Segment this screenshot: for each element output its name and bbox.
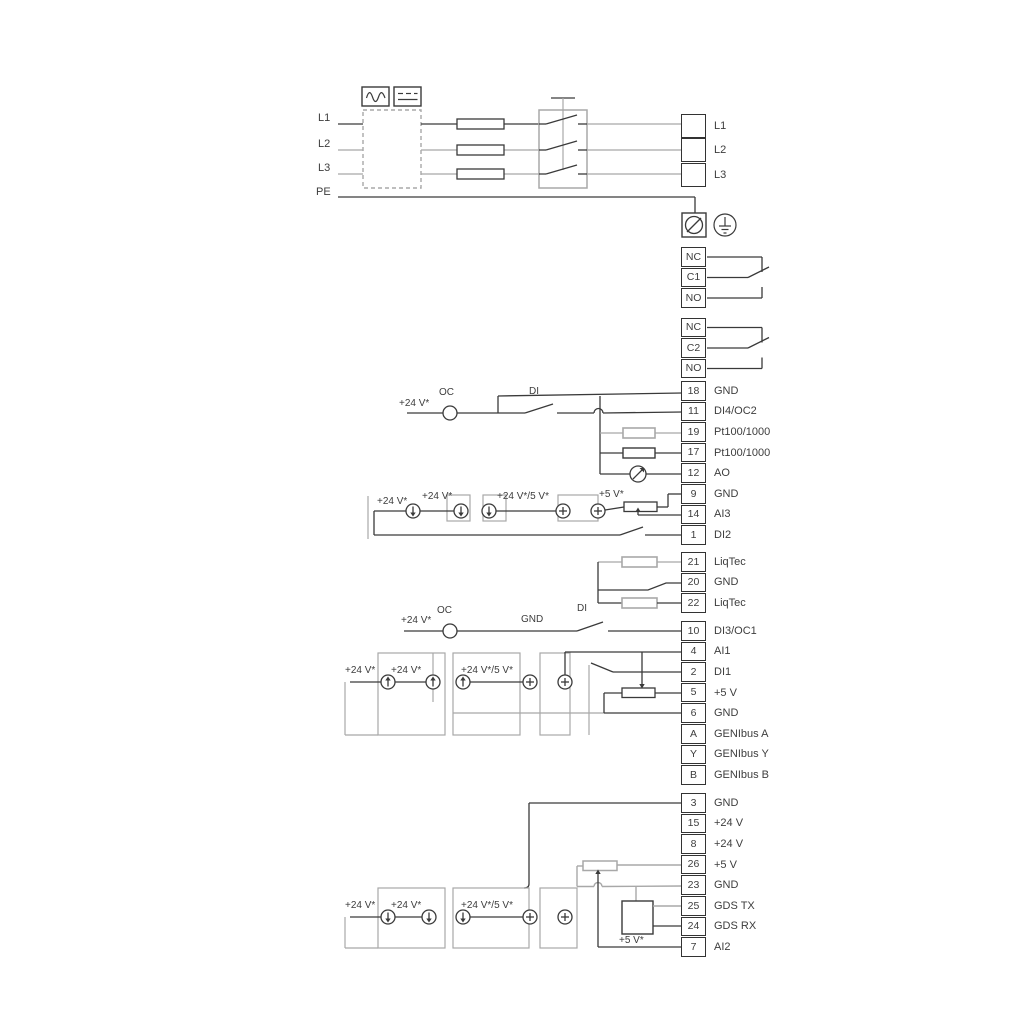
- dc-symbol-icon: [394, 87, 421, 106]
- terminal-label: Pt100/1000: [714, 443, 770, 463]
- earth-icon: [714, 214, 736, 236]
- line-label: L2: [318, 138, 330, 150]
- pe-wire: [338, 197, 695, 213]
- io-section-di4-pt-ao: [407, 393, 682, 482]
- relay-terminal-cell-text: NO: [686, 293, 702, 304]
- terminal-cell: 2: [681, 662, 706, 682]
- terminal-label: GDS TX: [714, 896, 755, 916]
- terminal-cell-text: 22: [688, 598, 700, 609]
- current-source-icon: [422, 910, 436, 924]
- terminal-cell: 10: [681, 621, 706, 641]
- terminal-label: LiqTec: [714, 552, 746, 572]
- current-source-icon: [381, 910, 395, 924]
- current-source-icon: [482, 504, 496, 518]
- sine-symbol-icon: [362, 87, 389, 106]
- power-wires: [338, 124, 682, 174]
- terminal-label: DI2: [714, 525, 731, 545]
- terminal-cell: 11: [681, 402, 706, 422]
- terminal-cell: 7: [681, 937, 706, 957]
- terminal-cell-text: A: [690, 729, 697, 740]
- plus-source-icon: [591, 504, 605, 518]
- terminal-cell: 1: [681, 525, 706, 545]
- current-source-icon: [406, 504, 420, 518]
- wire-label: GND: [521, 614, 543, 625]
- rcd-filter-box: [363, 110, 421, 188]
- open-collector-icon: [443, 624, 457, 638]
- io-section-gds-ai2: [345, 803, 682, 948]
- terminal-cell-text: 10: [688, 626, 700, 637]
- terminal-cell: Y: [681, 745, 706, 765]
- current-source-icon: [456, 675, 470, 689]
- wire-label: OC: [439, 387, 454, 398]
- current-source-icon: [454, 504, 468, 518]
- power-terminal-cell: [681, 163, 706, 187]
- wire-label: +5 V*: [599, 489, 624, 500]
- relay-terminal-cell-text: C1: [687, 272, 700, 283]
- terminal-label: LiqTec: [714, 593, 746, 613]
- terminal-cell: A: [681, 724, 706, 744]
- current-source-icon: [381, 675, 395, 689]
- io-section-liqtec: [598, 557, 682, 608]
- terminal-cell: 14: [681, 505, 706, 525]
- terminal-cell-text: 14: [688, 509, 700, 520]
- wire-label: DI: [577, 603, 587, 614]
- terminal-cell: 22: [681, 593, 706, 613]
- terminal-cell: 23: [681, 875, 706, 895]
- terminal-cell: 8: [681, 834, 706, 854]
- meter-icon: [630, 466, 646, 482]
- relay-terminal-cell: C1: [681, 268, 706, 288]
- plus-source-icon: [523, 910, 537, 924]
- terminal-cell: 15: [681, 814, 706, 834]
- terminal-label: AI3: [714, 504, 731, 524]
- terminal-cell-text: 3: [691, 798, 697, 809]
- terminal-cell: 5: [681, 683, 706, 703]
- terminal-cell-text: 19: [688, 427, 700, 438]
- wire-label: +24 V*/5 V*: [461, 900, 513, 911]
- wire-label: OC: [437, 605, 452, 616]
- terminal-cell: 19: [681, 422, 706, 442]
- power-terminal-label: L2: [714, 140, 726, 160]
- potentiometer-icon: [583, 861, 617, 871]
- terminal-label: +5 V: [714, 683, 737, 703]
- open-collector-icon: [443, 406, 457, 420]
- di-switch-icon: [498, 404, 594, 413]
- terminal-cell-text: 20: [688, 577, 700, 588]
- terminal-label: DI1: [714, 662, 731, 682]
- terminal-cell-text: 8: [691, 839, 697, 850]
- relay-terminal-cell: NC: [681, 318, 706, 338]
- power-terminal-label: L3: [714, 165, 726, 185]
- terminal-cell-text: 12: [688, 468, 700, 479]
- terminal-cell-text: 9: [691, 489, 697, 500]
- terminal-cell-text: 25: [688, 901, 700, 912]
- terminal-cell-text: 21: [688, 557, 700, 568]
- terminal-cell-text: 17: [688, 447, 700, 458]
- terminal-cell-text: 24: [688, 921, 700, 932]
- power-terminal-cell: [681, 138, 706, 162]
- relay-terminal-cell: NC: [681, 247, 706, 267]
- resistor-icon: [622, 557, 657, 567]
- terminal-label: GENIbus A: [714, 724, 768, 744]
- relay-terminal-cell-text: NC: [686, 252, 701, 263]
- terminal-cell: 6: [681, 703, 706, 723]
- terminal-label: DI4/OC2: [714, 401, 757, 421]
- relay-contact-icon: [707, 257, 769, 298]
- resistor-icon: [623, 428, 655, 438]
- terminal-label: +24 V: [714, 834, 743, 854]
- terminal-cell-text: 6: [691, 708, 697, 719]
- terminal-cell: 25: [681, 896, 706, 916]
- terminal-cell: 3: [681, 793, 706, 813]
- plus-source-icon: [556, 504, 570, 518]
- current-source-icon: [456, 910, 470, 924]
- fuse-icon: [457, 119, 504, 129]
- screw-terminal-icon: [682, 213, 706, 237]
- terminal-cell-text: 7: [691, 942, 697, 953]
- terminal-label: AI2: [714, 937, 731, 957]
- terminal-cell: 17: [681, 443, 706, 463]
- terminal-cell-text: 26: [688, 859, 700, 870]
- terminal-cell-text: 4: [691, 646, 697, 657]
- wire-label: +24 V*: [401, 615, 431, 626]
- terminal-cell-text: 5: [691, 687, 697, 698]
- line-label: L1: [318, 112, 330, 124]
- wire-label: +24 V*: [391, 900, 421, 911]
- power-input-section: [338, 87, 736, 237]
- terminal-cell: 12: [681, 463, 706, 483]
- terminal-label: GENIbus B: [714, 765, 769, 785]
- line-label: L3: [318, 162, 330, 174]
- potentiometer-icon: [622, 688, 655, 698]
- terminal-label: GND: [714, 484, 738, 504]
- terminal-cell-text: 1: [691, 530, 697, 541]
- terminal-cell: 20: [681, 573, 706, 593]
- wire-label: +24 V*: [399, 398, 429, 409]
- terminal-label: GND: [714, 875, 738, 895]
- current-source-icon: [426, 675, 440, 689]
- terminal-cell: B: [681, 765, 706, 785]
- wire-label: +5 V*: [619, 935, 644, 946]
- terminal-label: AO: [714, 463, 730, 483]
- plus-source-icon: [523, 675, 537, 689]
- relay-terminal-cell: NO: [681, 359, 706, 379]
- terminal-cell: 21: [681, 552, 706, 572]
- wire-label: +24 V*/5 V*: [461, 665, 513, 676]
- relay-terminal-cell: NO: [681, 288, 706, 308]
- terminal-cell: 4: [681, 642, 706, 662]
- terminal-label: +5 V: [714, 855, 737, 875]
- wire-label: +24 V*: [345, 665, 375, 676]
- fuse-icon: [457, 145, 504, 155]
- fuse-icon: [457, 169, 504, 179]
- terminal-label: +24 V: [714, 813, 743, 833]
- terminal-cell: 9: [681, 484, 706, 504]
- terminal-label: GND: [714, 703, 738, 723]
- terminal-cell: 24: [681, 917, 706, 937]
- plus-source-icon: [558, 675, 572, 689]
- resistor-icon: [622, 598, 657, 608]
- terminal-label: GND: [714, 381, 738, 401]
- terminal-label: GND: [714, 572, 738, 592]
- terminal-label: GND: [714, 793, 738, 813]
- relay-terminal-cell-text: C2: [687, 343, 700, 354]
- power-terminal-cell: [681, 114, 706, 138]
- wire-label: +24 V*: [422, 491, 452, 502]
- relay-contact-icon: [707, 328, 769, 369]
- relay-terminal-cell: C2: [681, 338, 706, 358]
- wire-label: +24 V*: [345, 900, 375, 911]
- relay-terminal-cell-text: NO: [686, 363, 702, 374]
- io-section-di3-ai1: [345, 622, 682, 735]
- terminal-cell: 26: [681, 855, 706, 875]
- terminal-label: AI1: [714, 641, 731, 661]
- resistor-icon: [623, 448, 655, 458]
- wiring-diagram-canvas: [0, 0, 1024, 1024]
- terminal-label: Pt100/1000: [714, 422, 770, 442]
- plus-source-icon: [558, 910, 572, 924]
- relay-terminal-cell-text: NC: [686, 322, 701, 333]
- gds-sensor-box: [622, 901, 653, 934]
- power-terminal-label: L1: [714, 116, 726, 136]
- terminal-cell-text: B: [690, 770, 697, 781]
- line-label: PE: [316, 186, 331, 198]
- terminal-cell-text: 15: [688, 818, 700, 829]
- terminal-cell-text: 11: [688, 406, 699, 417]
- terminal-label: GDS RX: [714, 916, 756, 936]
- terminal-cell: 18: [681, 381, 706, 401]
- wire-label: +24 V*/5 V*: [497, 491, 549, 502]
- terminal-cell-text: 2: [691, 667, 697, 678]
- wiring-diagram-page: L1L2L3L1L2L3PENCC1NONCC2NO18GND11DI4/OC2…: [0, 0, 1024, 1024]
- main-switch-icon: [539, 98, 587, 188]
- terminal-cell-text: Y: [690, 749, 697, 760]
- wire-label: +24 V*: [377, 496, 407, 507]
- terminal-cell-text: 23: [688, 880, 700, 891]
- wire-label: +24 V*: [391, 665, 421, 676]
- wire-label: DI: [529, 386, 539, 397]
- terminal-label: DI3/OC1: [714, 621, 757, 641]
- terminal-label: GENIbus Y: [714, 744, 769, 764]
- terminal-cell-text: 18: [688, 386, 700, 397]
- potentiometer-icon: [624, 502, 657, 515]
